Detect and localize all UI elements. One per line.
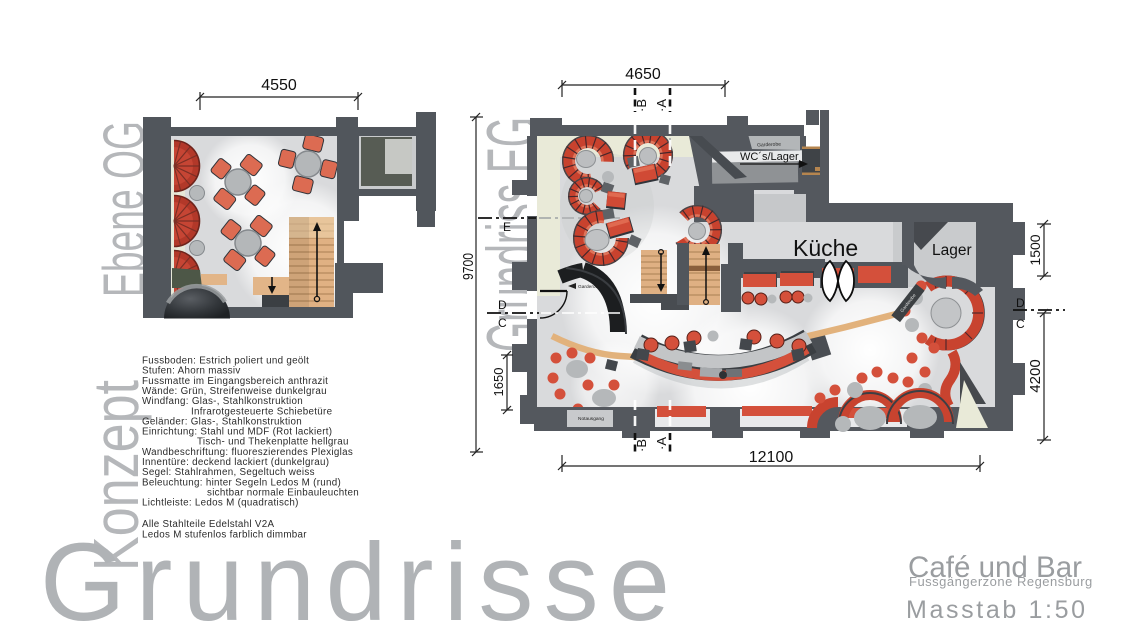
svg-text:Masstab 1:50: Masstab 1:50 [906,596,1085,624]
svg-text:·B: ·B [634,99,649,112]
svg-text:C: C [498,316,507,330]
svg-text:9700: 9700 [460,253,477,280]
svg-text:Garderobe: Garderobe [578,284,601,290]
svg-text:Garderobe: Garderobe [757,142,781,149]
svg-text:4650: 4650 [625,66,661,83]
svg-text:4200: 4200 [1027,359,1044,392]
svg-text:E: E [503,220,511,234]
svg-text:D: D [1016,296,1025,310]
svg-text:1500: 1500 [1027,234,1043,265]
svg-text:12100: 12100 [749,449,794,466]
svg-text:WC´s/Lager: WC´s/Lager [740,151,799,163]
svg-text:4550: 4550 [261,77,297,94]
svg-text:Lager: Lager [932,242,972,259]
svg-text:·A: ·A [654,99,669,112]
svg-text:C: C [1016,317,1025,331]
svg-text:D: D [498,298,507,312]
svg-text:1650: 1650 [491,368,506,397]
svg-text:Lichtleiste: Ledos M (quadrati: Lichtleiste: Ledos M (quadratisch) [142,498,299,509]
svg-text:·A: ·A [654,437,669,450]
svg-text:Ledos M stufenlos farblich dim: Ledos M stufenlos farblich dimmbar [142,529,307,540]
svg-text:·B: ·B [634,439,649,452]
svg-text:Küche: Küche [793,235,858,261]
svg-text:Fussgängerzone Regensburg: Fussgängerzone Regensburg [909,574,1093,589]
svg-text:Notausgang: Notausgang [578,416,604,422]
